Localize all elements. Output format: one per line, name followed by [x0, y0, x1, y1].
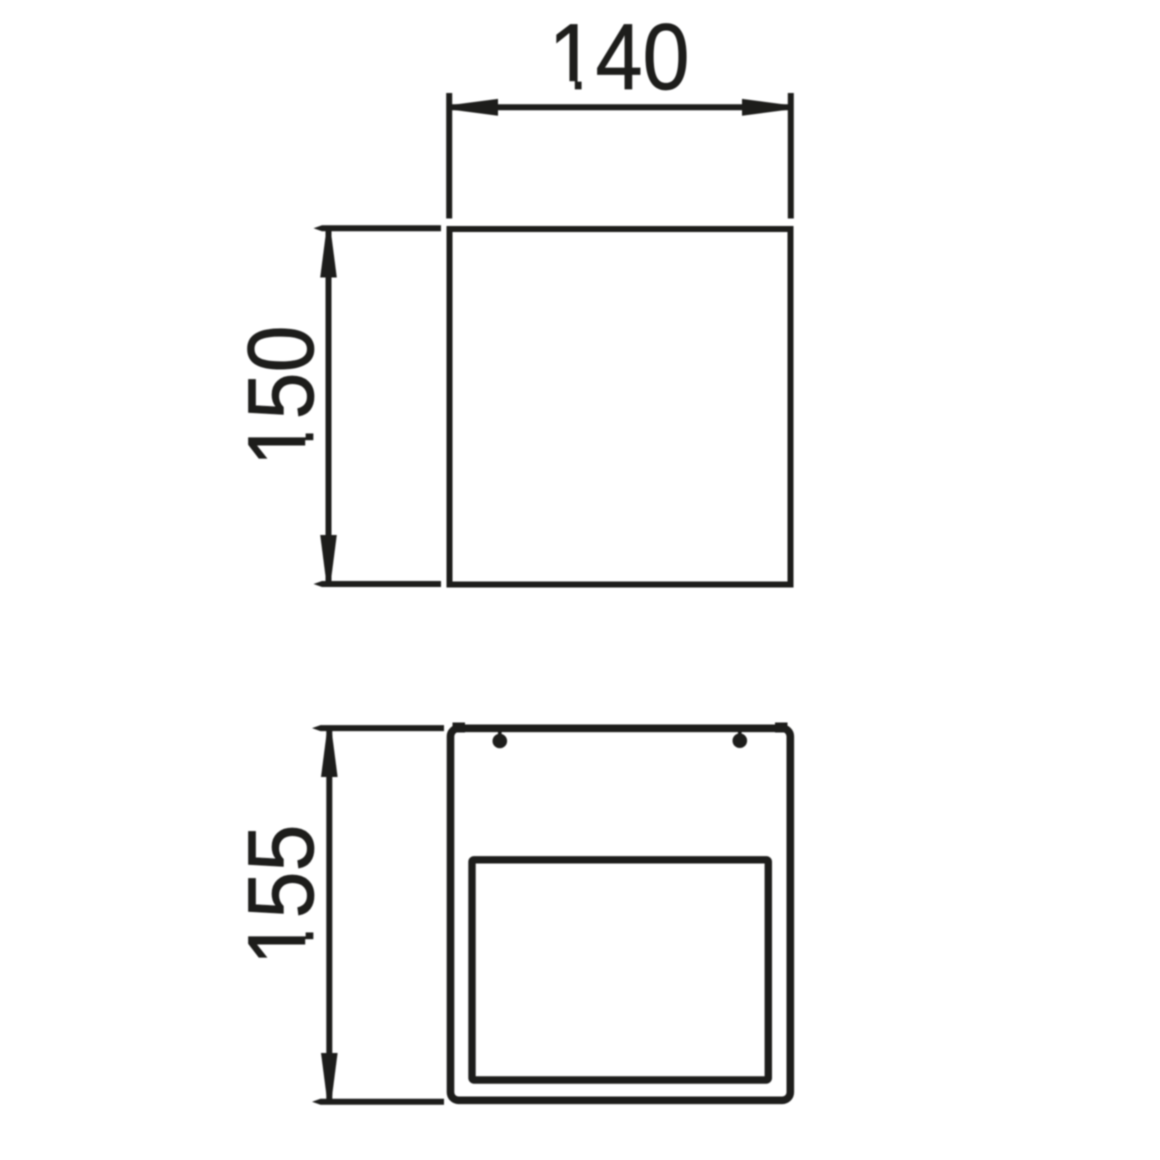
svg-text:140: 140 — [548, 4, 689, 109]
svg-text:150: 150 — [228, 325, 333, 466]
svg-text:155: 155 — [228, 824, 333, 965]
